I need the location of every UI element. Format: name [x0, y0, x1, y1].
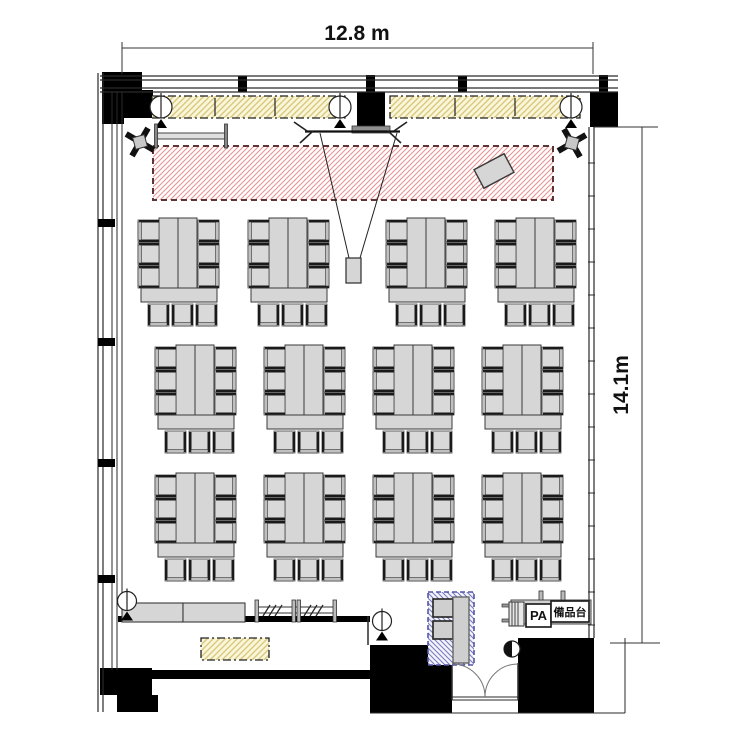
batten-strip: [152, 96, 345, 118]
chair-arm: [540, 432, 543, 452]
chair-arm: [374, 393, 394, 396]
chair-back: [409, 450, 426, 454]
chair-back: [422, 323, 439, 327]
chair-arm: [213, 560, 216, 580]
chair-back: [464, 245, 468, 263]
chair-back: [573, 222, 577, 240]
seating-island-r2c2: [264, 345, 345, 453]
chair-back: [560, 395, 564, 413]
chair-back: [150, 323, 167, 327]
chair-back: [542, 450, 559, 454]
chair-arm: [156, 475, 176, 478]
chair-back: [385, 578, 402, 582]
chair-back: [264, 349, 268, 367]
chair-arm: [306, 305, 309, 325]
chair-back: [191, 450, 208, 454]
chair-arm: [249, 263, 269, 266]
chair-back: [342, 349, 346, 367]
chair-arm: [249, 243, 269, 246]
chair-back: [215, 578, 232, 582]
chair-arm: [156, 521, 176, 524]
window-mullion-top-1: [238, 76, 247, 92]
chair-arm: [189, 560, 192, 580]
chair-back: [198, 323, 215, 327]
chair-back: [155, 477, 159, 495]
chair-arm: [139, 220, 159, 223]
chair-back: [555, 323, 572, 327]
trolley: [509, 602, 524, 626]
chair-arm: [196, 305, 199, 325]
stage-zone: [153, 146, 553, 200]
chair-arm: [265, 347, 285, 350]
chair-back: [284, 323, 301, 327]
chair-arm: [483, 347, 503, 350]
chair-arm: [167, 305, 170, 325]
chair-back: [324, 578, 341, 582]
chair-arm: [317, 432, 320, 452]
chair-arm: [139, 240, 159, 243]
chair-back: [409, 578, 426, 582]
table: [285, 473, 304, 543]
chair-arm: [559, 560, 562, 580]
chair-back: [560, 372, 564, 390]
chair-arm: [535, 432, 538, 452]
column-top-right-cap: [599, 75, 608, 92]
seating-island-r1c2: [248, 218, 329, 326]
chair-arm: [265, 498, 285, 501]
chair-back: [216, 222, 220, 240]
column-bottom-left-step: [117, 695, 158, 712]
chair-back: [138, 245, 142, 263]
chair-arm: [483, 370, 503, 373]
floor-plan-page: 12.8 m 14.1m PA 備品台: [0, 0, 750, 750]
chair-arm: [165, 560, 168, 580]
chair-back: [386, 222, 390, 240]
chair-arm: [559, 432, 562, 452]
chair-arm: [483, 495, 503, 498]
chair-back: [373, 372, 377, 390]
chair-back: [167, 578, 184, 582]
chair-arm: [156, 393, 176, 396]
table: [413, 345, 432, 415]
chair-arm: [415, 305, 418, 325]
chair-back: [482, 349, 486, 367]
chair-arm: [322, 432, 325, 452]
chair-back: [446, 323, 463, 327]
table: [516, 218, 535, 288]
chair-back: [260, 323, 277, 327]
alcove: [201, 638, 269, 660]
chair-arm: [249, 266, 269, 269]
chair-back: [482, 372, 486, 390]
chair-arm: [325, 305, 328, 325]
table: [485, 415, 561, 429]
chair-arm: [156, 367, 176, 370]
chair-back: [215, 450, 232, 454]
chair-arm: [265, 475, 285, 478]
chair-arm: [301, 305, 304, 325]
alcove-mat: [201, 638, 269, 660]
chair-arm: [156, 518, 176, 521]
chair-back: [276, 450, 293, 454]
chair-arm: [439, 305, 442, 325]
window-mullion-mark: [98, 459, 115, 467]
chair-back: [451, 523, 455, 541]
light-triangle-icon: [334, 119, 346, 128]
chair-arm: [402, 432, 405, 452]
chair-back: [342, 395, 346, 413]
chair-back: [300, 450, 317, 454]
chair-back: [560, 500, 564, 518]
chair-back: [451, 477, 455, 495]
chair-back: [138, 222, 142, 240]
wall-bottom-left-band: [100, 670, 372, 679]
table: [267, 543, 343, 557]
seating-island-r1c3: [386, 218, 467, 326]
chair-back: [507, 323, 524, 327]
chair-arm: [274, 432, 277, 452]
table: [376, 415, 452, 429]
chair-arm: [298, 432, 301, 452]
chair-back: [342, 372, 346, 390]
chair-back: [174, 323, 191, 327]
chair-arm: [483, 367, 503, 370]
chair-arm: [496, 263, 516, 266]
chair-back: [398, 323, 415, 327]
chair-arm: [529, 305, 532, 325]
chair-back: [233, 372, 237, 390]
table: [522, 345, 541, 415]
chair-arm: [191, 305, 194, 325]
chair-back: [495, 222, 499, 240]
table: [269, 218, 288, 288]
chair-arm: [374, 518, 394, 521]
rack-post: [292, 600, 296, 622]
chair-arm: [511, 560, 514, 580]
table: [141, 288, 217, 302]
shaft-panel: [453, 597, 469, 663]
chair-back: [326, 245, 330, 263]
chair-back: [264, 395, 268, 413]
chair-arm: [407, 432, 410, 452]
chair-back: [451, 500, 455, 518]
chair-arm: [505, 305, 508, 325]
chair-back: [373, 523, 377, 541]
chair-back: [248, 268, 252, 286]
table: [394, 473, 413, 543]
seating-island-r2c3: [373, 345, 454, 453]
table: [158, 543, 234, 557]
chair-arm: [172, 305, 175, 325]
rail-post: [155, 124, 158, 148]
chair-arm: [483, 475, 503, 478]
chair-back: [233, 395, 237, 413]
chair-back: [495, 245, 499, 263]
chair-back: [433, 578, 450, 582]
chair-back: [482, 523, 486, 541]
chair-arm: [265, 370, 285, 373]
chair-back: [495, 268, 499, 286]
chair-back: [560, 349, 564, 367]
chair-arm: [265, 393, 285, 396]
floor-plan-drawing: 12.8 m 14.1m PA 備品台: [0, 0, 750, 750]
chair-back: [342, 523, 346, 541]
chair-back: [573, 268, 577, 286]
table: [267, 415, 343, 429]
chair-arm: [496, 240, 516, 243]
speaker-body: [133, 135, 148, 150]
chair-back: [342, 500, 346, 518]
chair-arm: [277, 305, 280, 325]
chair-back: [464, 268, 468, 286]
light-triangle-icon: [376, 632, 388, 641]
shelf-post: [561, 591, 565, 600]
chair-arm: [156, 498, 176, 501]
chair-arm: [165, 432, 168, 452]
chair-back: [155, 523, 159, 541]
chair-arm: [322, 560, 325, 580]
chair-back: [386, 245, 390, 263]
chair-back: [248, 222, 252, 240]
screen-leg: [300, 131, 313, 143]
door-closer-icon: [504, 641, 512, 657]
chair-arm: [492, 432, 495, 452]
chair-arm: [426, 560, 429, 580]
chair-arm: [156, 495, 176, 498]
window-mullion-top-2: [458, 76, 467, 92]
chair-arm: [374, 498, 394, 501]
equipment-stand-label: 備品台: [554, 605, 587, 619]
chair-arm: [572, 305, 575, 325]
chair-arm: [383, 432, 386, 452]
chair-arm: [516, 560, 519, 580]
chair-arm: [215, 305, 218, 325]
chair-back: [494, 450, 511, 454]
chair-arm: [249, 220, 269, 223]
table: [407, 218, 426, 288]
chair-arm: [548, 305, 551, 325]
chair-back: [482, 477, 486, 495]
chair-back: [373, 477, 377, 495]
rail-post: [225, 124, 228, 148]
chair-arm: [535, 560, 538, 580]
chair-back: [518, 450, 535, 454]
chair-arm: [426, 432, 429, 452]
chair-back: [494, 578, 511, 582]
seating-island-r2c4: [482, 345, 563, 453]
chair-back: [155, 372, 159, 390]
rail-bar: [156, 133, 226, 139]
chair-arm: [387, 263, 407, 266]
door-swing-arc: [452, 664, 485, 697]
chair-arm: [265, 367, 285, 370]
table: [176, 345, 195, 415]
chair-arm: [156, 390, 176, 393]
table: [251, 288, 327, 302]
chair-arm: [189, 432, 192, 452]
column-top-center-cap: [366, 75, 375, 92]
table: [288, 218, 307, 288]
chair-arm: [265, 518, 285, 521]
chair-arm: [431, 560, 434, 580]
chair-arm: [274, 560, 277, 580]
table: [485, 543, 561, 557]
chair-arm: [431, 432, 434, 452]
chair-back: [326, 268, 330, 286]
chair-back: [433, 450, 450, 454]
chair-arm: [298, 560, 301, 580]
chair-arm: [463, 305, 466, 325]
chair-arm: [483, 521, 503, 524]
chair-back: [155, 349, 159, 367]
chair-back: [464, 222, 468, 240]
chair-back: [373, 395, 377, 413]
seating-island-r1c4: [495, 218, 576, 326]
chair-back: [264, 500, 268, 518]
chair-back: [482, 395, 486, 413]
table: [304, 473, 323, 543]
chair-arm: [511, 432, 514, 452]
chair-arm: [317, 560, 320, 580]
chair-arm: [387, 240, 407, 243]
seating-island-r3c1: [155, 473, 236, 581]
chair-arm: [516, 432, 519, 452]
rack-post: [333, 600, 337, 622]
chair-back: [155, 500, 159, 518]
chair-arm: [249, 240, 269, 243]
chair-arm: [265, 495, 285, 498]
chair-arm: [402, 560, 405, 580]
chair-arm: [258, 305, 261, 325]
height-dimension-label: 14.1m: [610, 355, 633, 415]
chair-arm: [387, 220, 407, 223]
trolley-handle: [502, 604, 509, 607]
service-shaft: [428, 592, 474, 665]
table: [503, 345, 522, 415]
chair-arm: [148, 305, 151, 325]
window-mullion-mark: [98, 219, 115, 227]
chair-arm: [265, 521, 285, 524]
chair-back: [573, 245, 577, 263]
table: [522, 473, 541, 543]
seating-island-r3c3: [373, 473, 454, 581]
chair-arm: [483, 498, 503, 501]
chair-back: [542, 578, 559, 582]
chair-back: [531, 323, 548, 327]
chair-arm: [139, 266, 159, 269]
chair-arm: [156, 370, 176, 373]
chair-arm: [483, 390, 503, 393]
chair-back: [233, 500, 237, 518]
wall-bottom-right-block: [518, 638, 594, 713]
screen-leg: [394, 122, 407, 131]
shaft-box: [433, 599, 453, 617]
shelf-post: [539, 591, 543, 600]
projector: [346, 258, 361, 283]
shaft-box: [433, 621, 453, 639]
table: [535, 218, 554, 288]
chair-arm: [387, 243, 407, 246]
chair-arm: [374, 347, 394, 350]
chair-arm: [540, 560, 543, 580]
trolley-handle: [502, 619, 509, 622]
chair-back: [191, 578, 208, 582]
chair-back: [216, 268, 220, 286]
column-top-center: [357, 92, 385, 128]
chair-arm: [208, 432, 211, 452]
chair-arm: [282, 305, 285, 325]
seating-island-r1c1: [138, 218, 219, 326]
chair-back: [155, 395, 159, 413]
chair-arm: [483, 393, 503, 396]
chair-back: [560, 477, 564, 495]
screen-leg: [294, 122, 307, 131]
chair-arm: [374, 521, 394, 524]
table: [304, 345, 323, 415]
chair-arm: [396, 305, 399, 325]
counter-table: [183, 603, 245, 622]
table: [195, 345, 214, 415]
table: [176, 473, 195, 543]
table: [503, 473, 522, 543]
chair-back: [451, 349, 455, 367]
rack-post: [297, 600, 301, 622]
chair-arm: [265, 390, 285, 393]
seating-island-r3c4: [482, 473, 563, 581]
window-mullion-mark: [98, 338, 115, 346]
chair-arm: [341, 432, 344, 452]
chair-arm: [184, 560, 187, 580]
chair-arm: [387, 266, 407, 269]
chair-arm: [139, 263, 159, 266]
chair-arm: [407, 560, 410, 580]
chair-back: [233, 477, 237, 495]
chair-arm: [483, 518, 503, 521]
chair-arm: [208, 560, 211, 580]
chair-back: [560, 523, 564, 541]
table: [413, 473, 432, 543]
chair-arm: [293, 432, 296, 452]
chair-arm: [232, 560, 235, 580]
chair-arm: [184, 432, 187, 452]
chair-back: [300, 578, 317, 582]
chair-arm: [496, 243, 516, 246]
chair-arm: [496, 220, 516, 223]
chair-arm: [374, 370, 394, 373]
chair-arm: [444, 305, 447, 325]
seating-island-r3c2: [264, 473, 345, 581]
chair-arm: [374, 475, 394, 478]
chair-back: [373, 500, 377, 518]
chair-arm: [450, 432, 453, 452]
chair-arm: [156, 347, 176, 350]
chair-back: [264, 477, 268, 495]
chair-arm: [139, 243, 159, 246]
seating-island-r2c1: [155, 345, 236, 453]
chair-back: [386, 268, 390, 286]
table: [158, 415, 234, 429]
chair-arm: [524, 305, 527, 325]
chair-back: [216, 245, 220, 263]
chair-back: [326, 222, 330, 240]
chair-arm: [450, 560, 453, 580]
column-top-left-step: [102, 116, 124, 124]
chair-arm: [232, 432, 235, 452]
chair-arm: [374, 495, 394, 498]
chair-arm: [374, 390, 394, 393]
chair-back: [167, 450, 184, 454]
chair-back: [248, 245, 252, 263]
